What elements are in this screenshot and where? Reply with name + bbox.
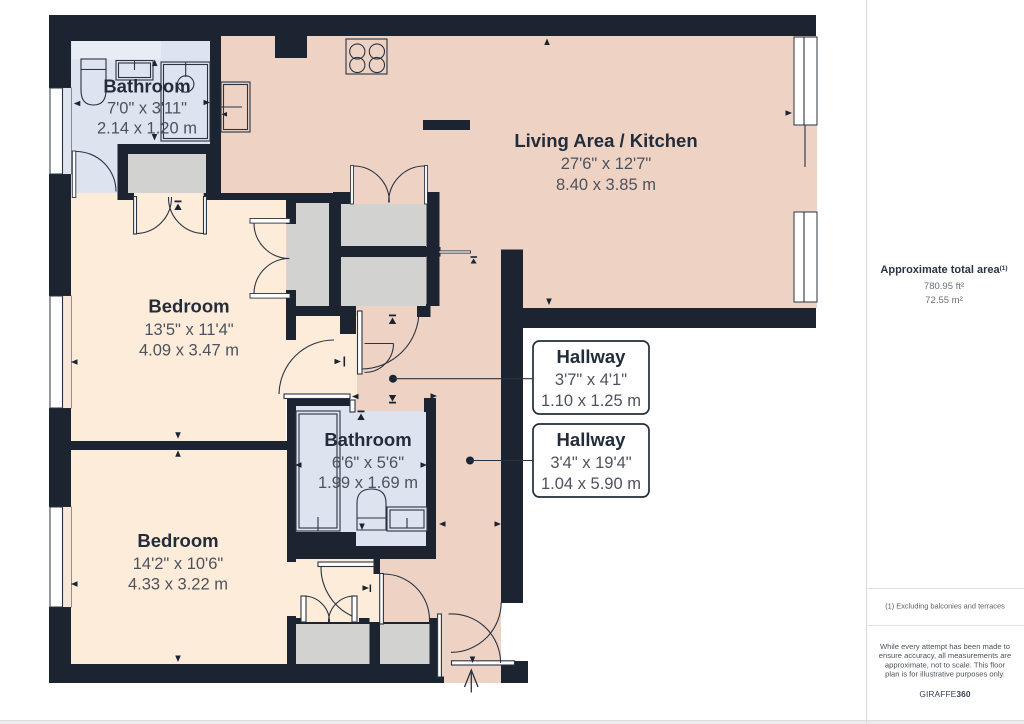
svg-text:13'5" x 11'4": 13'5" x 11'4" [144,321,233,339]
svg-text:7'0" x 3'11": 7'0" x 3'11" [107,100,187,118]
svg-text:4.33 x 3.22 m: 4.33 x 3.22 m [128,576,228,594]
svg-text:Hallway: Hallway [557,346,627,367]
svg-text:4.09 x 3.47 m: 4.09 x 3.47 m [139,342,239,360]
svg-text:14'2" x 10'6": 14'2" x 10'6" [133,555,224,573]
svg-text:780.95 ft²: 780.95 ft² [924,281,964,292]
svg-text:approximate, not to scale. Thi: approximate, not to scale. This floor [885,660,1006,669]
svg-text:6'6" x 5'6": 6'6" x 5'6" [332,454,404,472]
svg-text:While every attempt has been m: While every attempt has been made to [880,642,1010,651]
svg-text:Bathroom: Bathroom [103,76,190,97]
svg-text:Hallway: Hallway [557,429,627,450]
svg-text:Bedroom: Bedroom [137,530,218,551]
svg-text:(1) Excluding balconies and te: (1) Excluding balconies and terraces [885,602,1005,611]
svg-text:1.99 x 1.69 m: 1.99 x 1.69 m [318,474,418,492]
svg-text:72.55 m²: 72.55 m² [925,295,963,306]
svg-text:plan is for illustrative purpo: plan is for illustrative purposes only. [885,670,1005,679]
svg-text:GIRAFFE360: GIRAFFE360 [919,689,971,699]
svg-text:27'6" x 12'7": 27'6" x 12'7" [561,155,652,173]
svg-text:ensure accuracy, all measureme: ensure accuracy, all measurements are [879,651,1011,660]
svg-text:8.40 x 3.85 m: 8.40 x 3.85 m [556,176,656,194]
svg-text:Bathroom: Bathroom [324,429,411,450]
svg-text:Bedroom: Bedroom [148,296,229,317]
svg-text:1.10 x 1.25 m: 1.10 x 1.25 m [541,392,641,410]
svg-text:Living Area / Kitchen: Living Area / Kitchen [514,130,697,151]
svg-text:3'7" x 4'1": 3'7" x 4'1" [555,371,627,389]
svg-text:2.14 x 1.20 m: 2.14 x 1.20 m [97,120,197,138]
svg-text:1.04 x 5.90 m: 1.04 x 5.90 m [541,475,641,493]
svg-text:3'4" x 19'4": 3'4" x 19'4" [550,454,631,472]
svg-text:Approximate total area(1): Approximate total area(1) [880,264,1007,276]
